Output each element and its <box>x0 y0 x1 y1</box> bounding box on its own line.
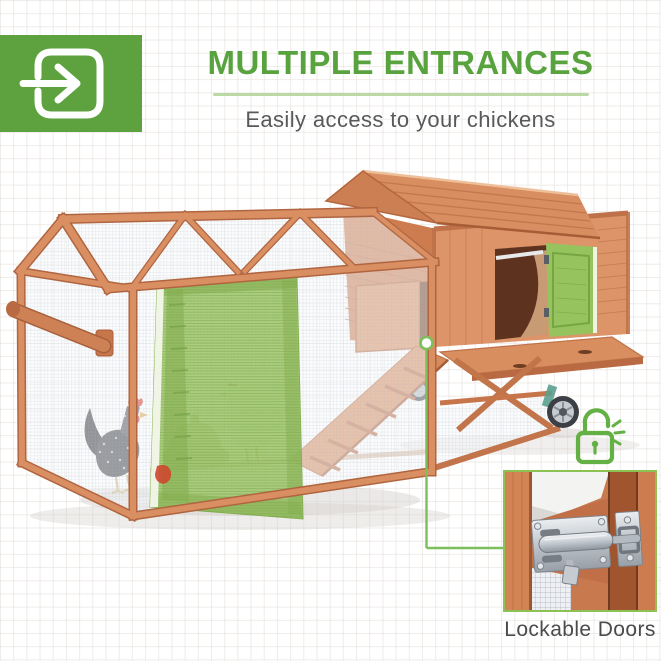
inset-wood-frame <box>505 472 531 610</box>
run-door-highlight <box>150 276 303 519</box>
lockable-door-inset-photo <box>503 470 657 612</box>
callout-anchor-dot <box>421 337 433 349</box>
coop-door-highlight <box>544 243 597 337</box>
door-hinge <box>544 308 549 317</box>
unlocked-padlock-icon <box>578 410 624 462</box>
coop-door-opening <box>495 245 548 340</box>
door-hinge <box>544 255 549 264</box>
inset-caption: Lockable Doors <box>500 618 660 642</box>
wheel-right <box>547 396 579 428</box>
